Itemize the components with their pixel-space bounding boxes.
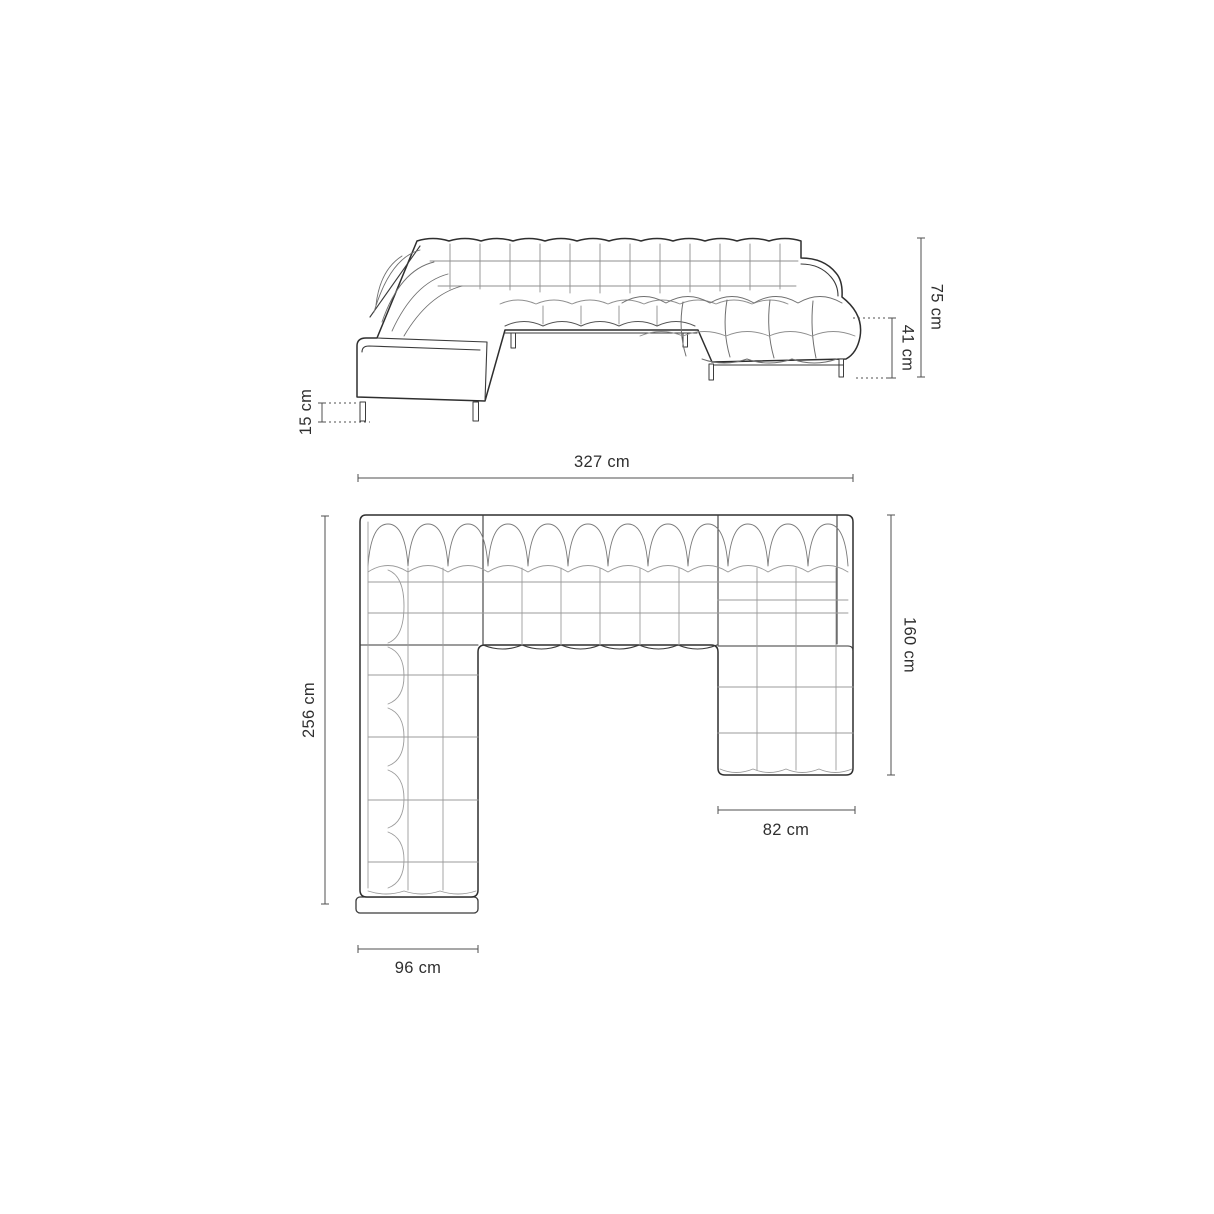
dim-label-total-height: 75 cm xyxy=(928,284,945,330)
sofa-front-view xyxy=(357,239,861,422)
dim-label-chaise-width: 82 cm xyxy=(763,822,809,839)
dim-label-total-width: 327 cm xyxy=(574,454,630,471)
sofa-dimension-diagram: 75 cm 41 cm 15 cm 327 cm 256 cm 160 cm 8… xyxy=(0,0,1214,1214)
diagram-drawing xyxy=(0,0,1214,1214)
dim-label-leg-height: 15 cm xyxy=(298,389,315,435)
dim-label-total-depth: 256 cm xyxy=(301,682,318,738)
sofa-top-view xyxy=(356,515,853,913)
dim-label-arm-width: 96 cm xyxy=(395,960,441,977)
dim-label-chaise-depth: 160 cm xyxy=(901,617,918,673)
dim-label-seat-height: 41 cm xyxy=(899,325,916,371)
